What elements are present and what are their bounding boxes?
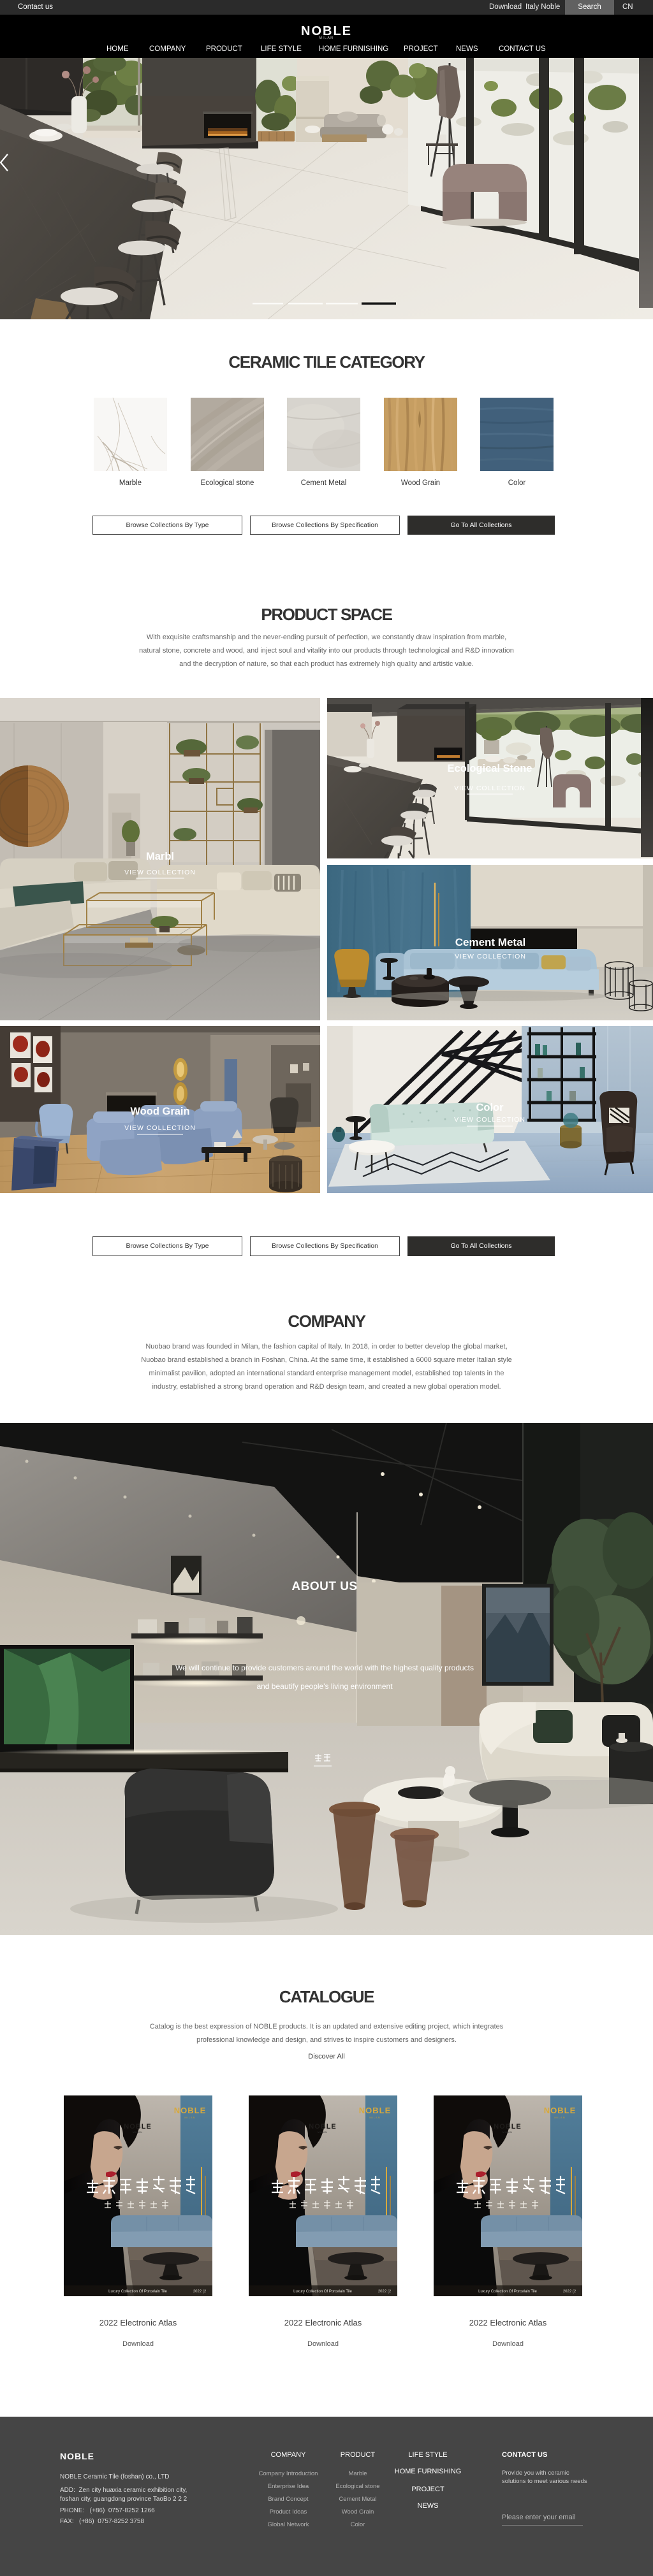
svg-text:We will continue to provide cu: We will continue to provide customers ar…	[175, 1663, 474, 1672]
svg-text:ABOUT US: ABOUT US	[291, 1580, 357, 1593]
svg-text:VIEW COLLECTION: VIEW COLLECTION	[454, 1116, 525, 1124]
svg-text:Cement Metal: Cement Metal	[455, 936, 526, 948]
svg-text:VIEW COLLECTION: VIEW COLLECTION	[454, 785, 525, 792]
svg-text:VIEW COLLECTION: VIEW COLLECTION	[124, 869, 196, 876]
svg-text:Color: Color	[476, 1102, 504, 1113]
svg-text:and beautify people's living e: and beautify people's living environment	[256, 1682, 393, 1691]
svg-text:Ecological Stone: Ecological Stone	[448, 763, 532, 774]
svg-text:Wood Grain: Wood Grain	[130, 1106, 189, 1117]
svg-text:VIEW COLLECTION: VIEW COLLECTION	[455, 953, 526, 960]
svg-text:VIEW COLLECTION: VIEW COLLECTION	[124, 1124, 196, 1132]
svg-text:Marbl: Marbl	[146, 851, 174, 862]
